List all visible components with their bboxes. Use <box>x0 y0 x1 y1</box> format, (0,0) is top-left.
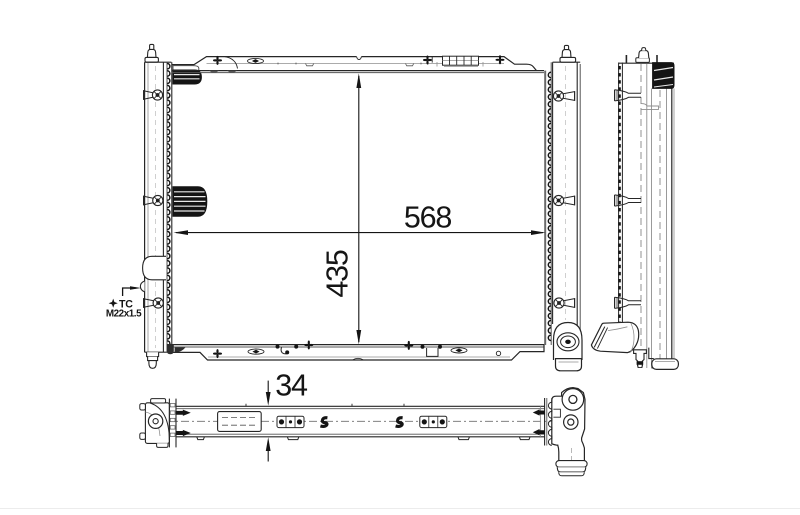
svg-text:568: 568 <box>404 200 452 234</box>
svg-text:435: 435 <box>320 250 354 298</box>
svg-text:M22x1.5: M22x1.5 <box>106 308 142 319</box>
svg-text:34: 34 <box>275 369 308 403</box>
